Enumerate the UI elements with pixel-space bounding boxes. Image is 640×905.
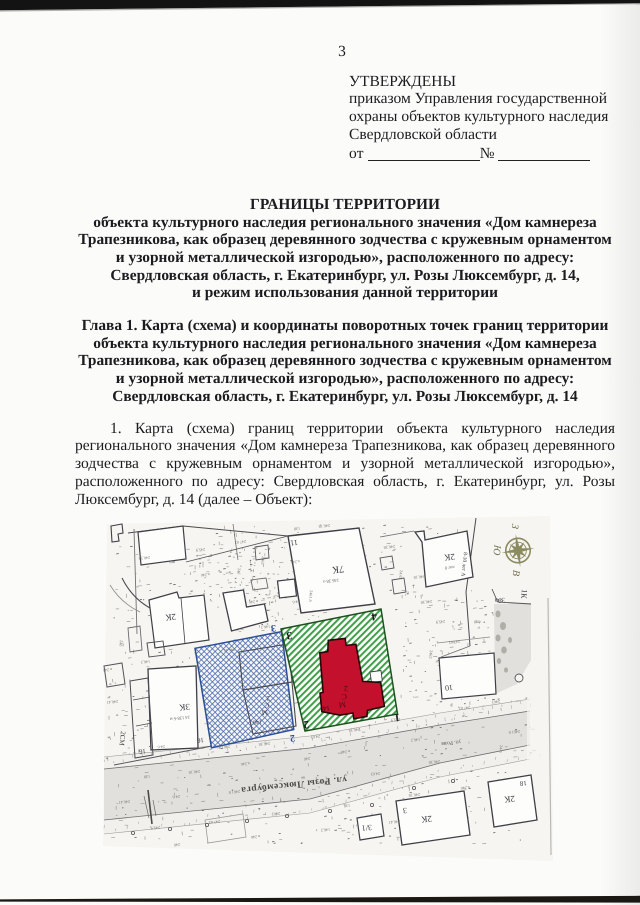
svg-text:С: С: [341, 692, 347, 702]
svg-text:245.9: 245.9: [151, 825, 161, 831]
svg-text:16: 16: [138, 747, 146, 756]
svg-text:в 246: в 246: [249, 599, 259, 605]
svg-text:24-6: 24-6: [157, 744, 165, 750]
svg-text:18: 18: [519, 779, 527, 788]
svg-text:146.2: 146.2: [141, 659, 151, 665]
svg-text:М: М: [338, 700, 346, 710]
svg-text:3/1: 3/1: [361, 823, 372, 833]
svg-text:245.9: 245.9: [436, 619, 446, 625]
svg-text:24б: 24б: [174, 842, 181, 848]
svg-text:В: В: [510, 569, 522, 576]
svg-text:245.9: 245.9: [196, 547, 206, 553]
svg-text:24б: 24б: [304, 756, 311, 762]
svg-text:1К: 1К: [519, 589, 529, 600]
svg-text:146.2: 146.2: [261, 624, 271, 630]
svg-text:2К: 2К: [443, 552, 455, 563]
svg-text:24.63: 24.63: [398, 570, 404, 580]
svg-text:3К: 3К: [178, 702, 190, 713]
svg-text:в 246: в 246: [103, 667, 113, 673]
svg-text:14б: 14б: [252, 718, 262, 726]
svg-text:24-6: 24-6: [292, 599, 300, 605]
svg-text:245.9: 245.9: [391, 717, 401, 723]
svg-text:24б: 24б: [236, 568, 242, 575]
svg-text:146.2: 146.2: [321, 827, 331, 833]
svg-text:2463: 2463: [492, 699, 501, 705]
svg-text:39а: 39а: [494, 596, 506, 605]
svg-text:10: 10: [445, 683, 454, 693]
svg-text:ч.246: ч.246: [201, 572, 211, 578]
svg-text:2К: 2К: [503, 794, 515, 805]
svg-text:2СМ: 2СМ: [117, 731, 127, 747]
svg-text:24-6: 24-6: [498, 745, 504, 753]
svg-text:2463: 2463: [260, 556, 266, 565]
svg-text:24.63: 24.63: [311, 734, 321, 740]
svg-text:146.2: 146.2: [411, 737, 421, 743]
svg-text:14: 14: [322, 704, 330, 713]
svg-text:2К: 2К: [420, 814, 432, 825]
svg-text:7К: 7К: [331, 563, 344, 575]
svg-text:24б: 24б: [118, 640, 124, 647]
svg-text:2К: 2К: [164, 612, 176, 623]
svg-text:138: 138: [474, 619, 481, 625]
svg-text:11: 11: [290, 538, 299, 548]
svg-text:138: 138: [144, 774, 151, 780]
svg-text:16: 16: [196, 736, 204, 745]
svg-text:в 246: в 246: [341, 749, 351, 755]
svg-text:ч.246: ч.246: [461, 785, 471, 791]
svg-text:138: 138: [294, 526, 301, 532]
svg-text:138: 138: [344, 803, 351, 809]
svg-text:24.63: 24.63: [371, 771, 381, 777]
svg-text:ч.246: ч.246: [291, 559, 301, 565]
svg-text:2463: 2463: [272, 811, 281, 817]
svg-text:2463: 2463: [428, 650, 434, 659]
svg-text:ч.246: ч.246: [241, 761, 251, 767]
svg-text:в 246: в 246: [251, 834, 261, 840]
svg-text:24-6: 24-6: [172, 794, 180, 800]
svg-text:Ю: Ю: [490, 543, 502, 556]
